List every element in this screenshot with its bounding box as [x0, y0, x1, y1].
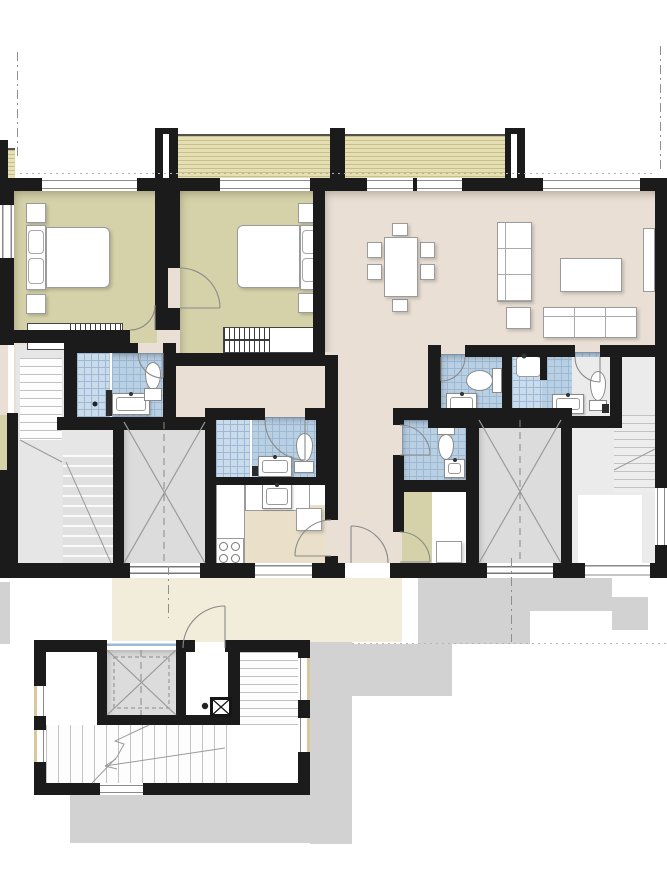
- entrance-elevator-shaft: [107, 650, 176, 715]
- cast-shadow: [70, 795, 310, 843]
- sofa: [543, 307, 637, 338]
- double-bed: [46, 227, 110, 288]
- bath-fixture: [602, 404, 609, 413]
- wall: [168, 308, 180, 330]
- stair-flight-lower: [63, 455, 113, 563]
- toilet-tank: [144, 388, 162, 401]
- wall: [0, 258, 14, 345]
- wall: [312, 563, 345, 578]
- wall: [655, 178, 667, 488]
- wall: [393, 455, 404, 532]
- wall: [168, 353, 325, 366]
- washing-machine: [436, 541, 462, 563]
- wash-basin: [444, 459, 465, 478]
- elevator-door: [130, 563, 200, 578]
- pillow: [28, 258, 44, 284]
- wall: [393, 420, 404, 425]
- wall: [600, 345, 655, 357]
- neighbor-floor-sliver: [0, 345, 8, 415]
- window-sill: [307, 658, 310, 700]
- dining-chair: [367, 242, 382, 258]
- wall: [310, 178, 367, 191]
- wall: [143, 783, 310, 795]
- wall: [137, 178, 220, 191]
- side-table: [506, 307, 531, 329]
- wash-basin: [258, 456, 292, 477]
- fridge: [296, 508, 322, 531]
- wall: [465, 345, 575, 357]
- window-sill: [34, 686, 37, 716]
- wall: [14, 330, 130, 343]
- wall: [34, 640, 46, 686]
- toilet-tank: [492, 368, 502, 393]
- wardrobe-hangers: [224, 328, 270, 352]
- window: [42, 178, 137, 191]
- pier-slot: [511, 134, 517, 178]
- shower-partition: [540, 352, 547, 380]
- wall: [0, 470, 16, 578]
- entrance-hall: [112, 578, 402, 642]
- window: [220, 178, 310, 191]
- kitchen-sink: [262, 484, 292, 509]
- wall: [57, 417, 216, 430]
- stove-burner: [219, 542, 228, 551]
- wall: [155, 191, 168, 330]
- window: [255, 563, 312, 578]
- pillow: [28, 230, 44, 254]
- wall: [428, 416, 502, 428]
- shower-area: [216, 417, 250, 477]
- stair-flight-upper: [20, 358, 62, 440]
- wall: [316, 408, 338, 485]
- elevator-2-shaft: [479, 420, 561, 563]
- floor-plan: [0, 0, 667, 894]
- wall: [428, 345, 441, 420]
- window-mullion: [413, 178, 417, 191]
- cast-shadow: [352, 644, 452, 696]
- pier-slot: [163, 134, 169, 178]
- toilet-bowl: [466, 370, 493, 391]
- window-sill: [307, 718, 310, 752]
- grid-axis-line: [17, 52, 18, 156]
- window: [543, 178, 640, 191]
- window-sill: [34, 730, 37, 762]
- dining-chair: [420, 242, 435, 258]
- cast-shadow: [530, 578, 612, 611]
- stove-burner: [231, 554, 240, 563]
- cast-shadow: [612, 597, 648, 630]
- wall: [313, 191, 325, 355]
- stove-burner: [231, 542, 240, 551]
- wall: [168, 191, 180, 268]
- wall: [34, 716, 46, 730]
- dining-chair: [367, 264, 382, 280]
- cast-shadow: [418, 578, 530, 644]
- wall: [113, 430, 124, 578]
- wall: [240, 640, 298, 652]
- stair-landing: [232, 725, 298, 783]
- sofa: [497, 222, 532, 302]
- shower-tray: [516, 356, 541, 377]
- elevator-door: [487, 563, 553, 578]
- elevator-1-shaft: [124, 422, 205, 563]
- entrance-door-glazed: [100, 783, 143, 795]
- double-bed: [237, 225, 300, 288]
- wall: [502, 345, 512, 420]
- toilet-tank: [294, 461, 314, 473]
- grid-axis-line: [511, 558, 512, 642]
- wall: [186, 640, 195, 652]
- reference-dotted-line: [352, 643, 667, 644]
- cast-shadow: [0, 582, 10, 644]
- wall: [0, 178, 14, 205]
- elevator-door: [107, 641, 176, 650]
- stove-burner: [219, 554, 228, 563]
- window: [585, 563, 650, 578]
- wall: [462, 178, 543, 191]
- window: [0, 205, 14, 258]
- nightstand: [26, 294, 46, 314]
- balcony-pier: [0, 140, 8, 178]
- wall: [205, 408, 216, 578]
- wall: [298, 700, 310, 718]
- wall: [561, 408, 572, 578]
- coffee-table: [560, 258, 622, 292]
- wall: [325, 556, 338, 563]
- door-opening: [345, 563, 390, 578]
- wall: [305, 408, 316, 420]
- wall: [205, 408, 265, 420]
- wall: [466, 408, 479, 578]
- stair-landing: [578, 495, 642, 563]
- wall: [325, 485, 338, 520]
- wall: [650, 563, 667, 578]
- stair-flight-bottom: [46, 725, 232, 783]
- stair-flight-right: [240, 652, 298, 725]
- reference-dotted-line: [20, 173, 655, 174]
- wall: [97, 640, 107, 725]
- wall: [176, 640, 186, 725]
- wall: [225, 640, 232, 652]
- dining-chair: [392, 299, 408, 312]
- window: [655, 488, 667, 545]
- dining-table: [384, 237, 418, 297]
- wall: [34, 783, 100, 795]
- nightstand: [26, 203, 46, 223]
- service-duct: [210, 697, 232, 717]
- grid-axis-line: [168, 566, 169, 618]
- tv-sideboard: [643, 228, 655, 292]
- grid-axis-line: [660, 46, 661, 170]
- wall: [77, 343, 138, 353]
- laundry-floor-strip: [402, 492, 432, 563]
- dining-chair: [392, 223, 408, 236]
- dining-chair: [420, 264, 435, 280]
- wall: [502, 416, 622, 428]
- wall: [298, 640, 310, 658]
- wall: [325, 355, 338, 408]
